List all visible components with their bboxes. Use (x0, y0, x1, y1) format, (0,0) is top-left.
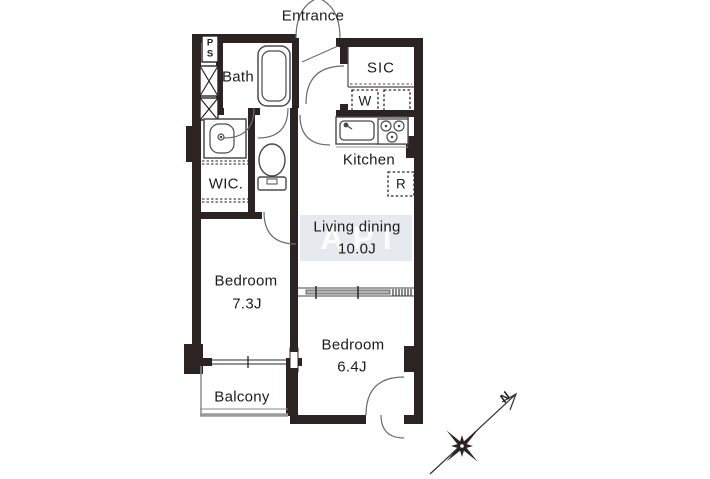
kitchen-sink (340, 121, 374, 140)
pipe-shaft-label: PS (205, 38, 216, 59)
stove (378, 119, 408, 144)
bathtub (258, 46, 290, 106)
kitchen-label: Kitchen (343, 152, 395, 169)
balcony-window (212, 356, 286, 368)
compass-north-label: N (497, 389, 514, 406)
bedroom1-label: Bedroom (215, 273, 278, 290)
wall-slot-window (290, 348, 298, 372)
washer-label: W (358, 94, 371, 109)
bedroom2-label: Bedroom (322, 337, 385, 354)
compass-rose-icon: N (430, 389, 516, 474)
floorplan-page: API (0, 0, 710, 479)
balcony-label: Balcony (214, 389, 269, 406)
bedroom1-size: 7.3J (232, 296, 262, 313)
bedroom2-size: 6.4J (337, 359, 367, 376)
refrigerator-label: R (396, 177, 406, 192)
living-dining-size: 10.0J (338, 241, 376, 258)
toilet (258, 144, 286, 190)
entrance-label: Entrance (282, 8, 344, 25)
sic-label: SIC (367, 60, 395, 77)
bath-label: Bath (222, 69, 254, 86)
sliding-partition (298, 286, 414, 299)
living-dining-label: Living dining (313, 219, 400, 236)
wic-label: WIC. (209, 176, 244, 193)
